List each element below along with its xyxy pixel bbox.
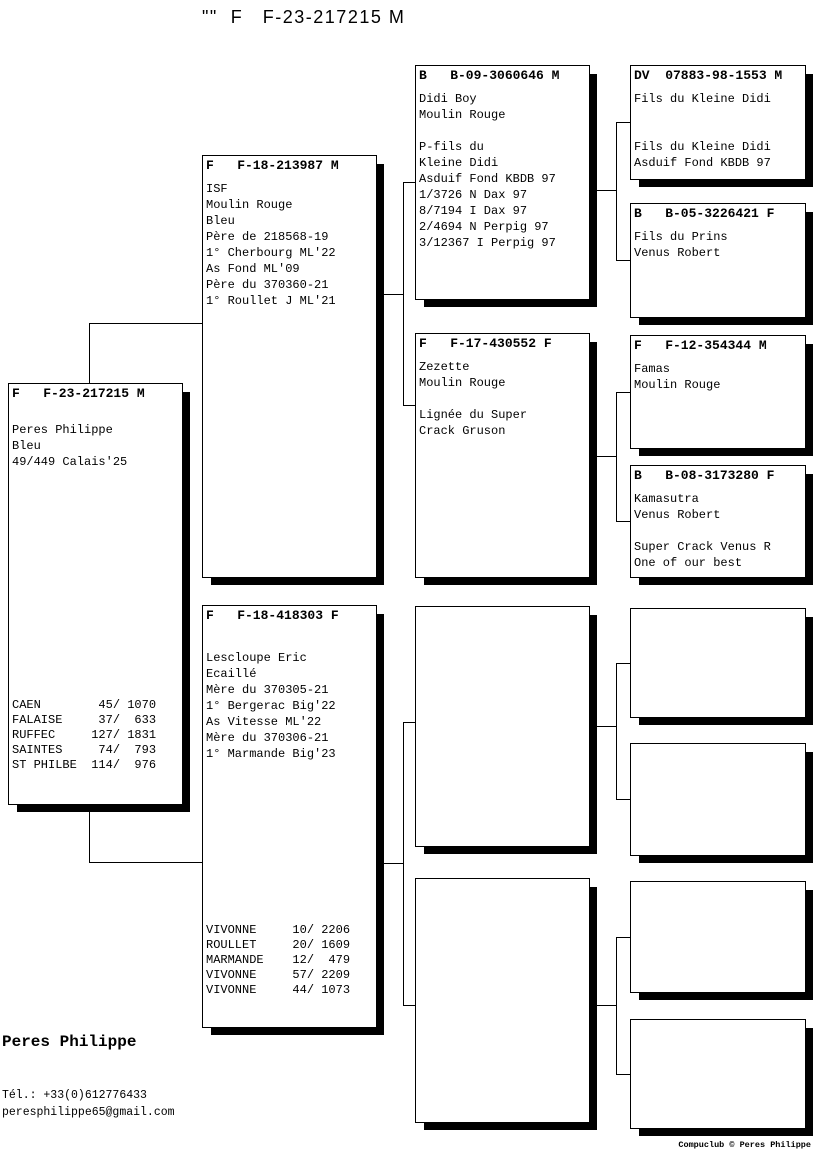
connector-line <box>403 722 404 1006</box>
pedigree-box-granddam-maternal-empty <box>415 878 590 1123</box>
ring-number-ggp4: B B-08-3173280 F <box>634 468 774 483</box>
ring-number-ggp1: DV 07883-98-1553 M <box>634 68 782 83</box>
granddam-paternal-details: Zezette Moulin Rouge Lignée du Super Cra… <box>419 359 527 439</box>
connector-line <box>616 122 617 261</box>
connector-line <box>403 722 416 723</box>
ggp4-details: Kamasutra Venus Robert Super Crack Venus… <box>634 491 771 571</box>
connector-line <box>377 294 404 295</box>
connector-line <box>403 405 416 406</box>
connector-line <box>89 805 90 863</box>
breeder-name: Peres Philippe <box>2 1033 136 1051</box>
ring-number-subject: F F-23-217215 M <box>12 386 145 401</box>
connector-line <box>616 663 617 800</box>
dam-race-results: VIVONNE 10/ 2206 ROULLET 20/ 1609 MARMAN… <box>206 923 350 998</box>
connector-line <box>590 190 617 191</box>
connector-line <box>590 1005 617 1006</box>
connector-line <box>590 456 617 457</box>
pedigree-box-greatgrandparent-6-empty <box>630 743 806 856</box>
connector-line <box>616 937 631 938</box>
connector-line <box>616 799 631 800</box>
pedigree-box-granddam-paternal: F F-17-430552 F Zezette Moulin Rouge Lig… <box>415 333 590 578</box>
connector-line <box>616 937 617 1075</box>
connector-line <box>616 1074 631 1075</box>
ggp1-details: Fils du Kleine Didi Fils du Kleine Didi … <box>634 91 771 171</box>
ggp3-details: Famas Moulin Rouge <box>634 361 720 393</box>
ring-number-granddam-paternal: F F-17-430552 F <box>419 336 552 351</box>
pedigree-box-greatgrandparent-7-empty <box>630 881 806 993</box>
pedigree-box-greatgrandparent-1: DV 07883-98-1553 M Fils du Kleine Didi F… <box>630 65 806 180</box>
pedigree-box-sire: F F-18-213987 M ISF Moulin Rouge Bleu Pè… <box>202 155 377 578</box>
connector-line <box>403 182 416 183</box>
connector-line <box>616 122 631 123</box>
ring-number-ggp2: B B-05-3226421 F <box>634 206 774 221</box>
connector-line <box>616 392 617 522</box>
connector-line <box>403 182 404 406</box>
pedigree-box-greatgrandparent-3: F F-12-354344 M Famas Moulin Rouge <box>630 335 806 449</box>
pedigree-box-grandsire-maternal-empty <box>415 606 590 847</box>
connector-line <box>616 260 631 261</box>
pedigree-box-greatgrandparent-4: B B-08-3173280 F Kamasutra Venus Robert … <box>630 465 806 578</box>
breeder-email: peresphilippe65@gmail.com <box>2 1106 175 1119</box>
ring-number-grandsire-paternal: B B-09-3060646 M <box>419 68 559 83</box>
pedigree-box-grandsire-paternal: B B-09-3060646 M Didi Boy Moulin Rouge P… <box>415 65 590 300</box>
ring-number-ggp3: F F-12-354344 M <box>634 338 767 353</box>
pedigree-box-greatgrandparent-8-empty <box>630 1019 806 1129</box>
connector-line <box>616 521 631 522</box>
breeder-phone: Tél.: +33(0)612776433 <box>2 1089 147 1102</box>
grandsire-paternal-details: Didi Boy Moulin Rouge P-fils du Kleine D… <box>419 91 556 251</box>
pedigree-box-greatgrandparent-5-empty <box>630 608 806 718</box>
connector-line <box>616 392 631 393</box>
dam-details: Lescloupe Eric Ecaillé Mère du 370305-21… <box>206 650 336 762</box>
pedigree-box-dam: F F-18-418303 F Lescloupe Eric Ecaillé M… <box>202 605 377 1028</box>
connector-line <box>403 1005 416 1006</box>
subject-details: Peres Philippe Bleu 49/449 Calais'25 <box>12 422 127 470</box>
sire-details: ISF Moulin Rouge Bleu Père de 218568-19 … <box>206 181 336 309</box>
subject-race-results: CAEN 45/ 1070 FALAISE 37/ 633 RUFFEC 127… <box>12 698 156 773</box>
connector-line <box>89 323 90 383</box>
compuclub-credit: Compuclub © Peres Philippe <box>678 1140 811 1150</box>
connector-line <box>590 726 617 727</box>
ring-number-sire: F F-18-213987 M <box>206 158 339 173</box>
connector-line <box>377 863 404 864</box>
ggp2-details: Fils du Prins Venus Robert <box>634 229 728 261</box>
ring-number-dam: F F-18-418303 F <box>206 608 339 623</box>
pedigree-box-greatgrandparent-2: B B-05-3226421 F Fils du Prins Venus Rob… <box>630 203 806 318</box>
pedigree-box-subject: F F-23-217215 M Peres Philippe Bleu 49/4… <box>8 383 183 805</box>
page-title: "" F F-23-217215 M <box>202 7 405 28</box>
connector-line <box>89 323 203 324</box>
pedigree-page: "" F F-23-217215 M F F-23-217215 M Peres… <box>0 0 816 1172</box>
connector-line <box>89 862 203 863</box>
connector-line <box>616 663 631 664</box>
